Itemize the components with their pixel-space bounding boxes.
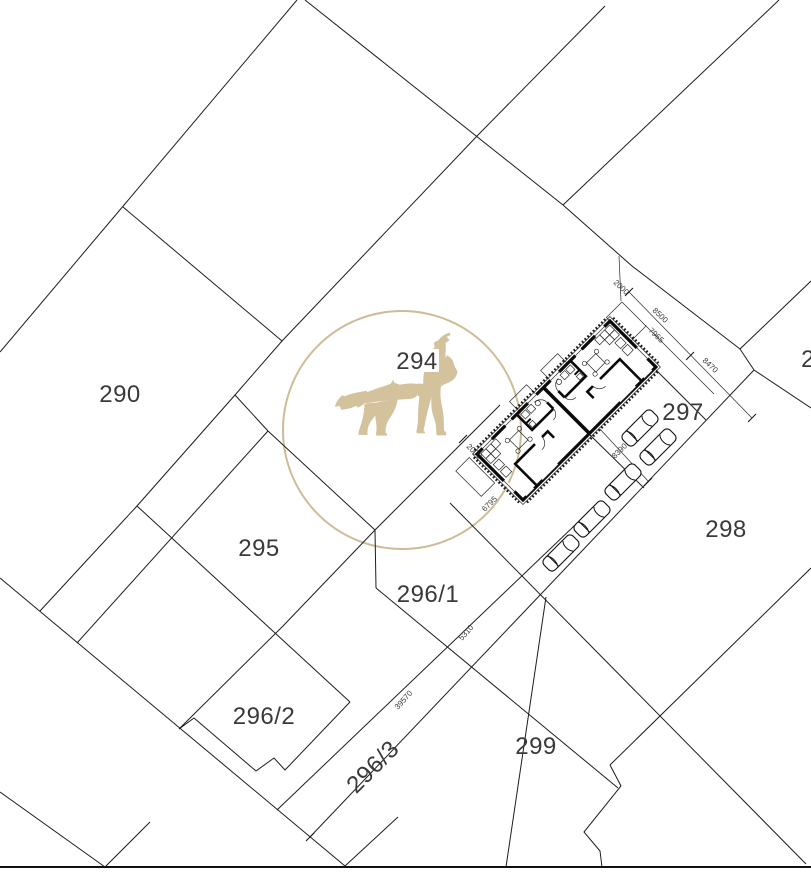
svg-text:295: 295	[238, 535, 280, 562]
svg-text:297: 297	[662, 399, 704, 426]
svg-text:299: 299	[515, 733, 557, 760]
svg-text:290: 290	[99, 381, 141, 408]
svg-text:2: 2	[801, 346, 811, 373]
svg-text:296/1: 296/1	[397, 581, 460, 608]
svg-text:294: 294	[396, 348, 438, 375]
svg-text:298: 298	[705, 516, 747, 543]
svg-text:296/2: 296/2	[233, 703, 296, 730]
